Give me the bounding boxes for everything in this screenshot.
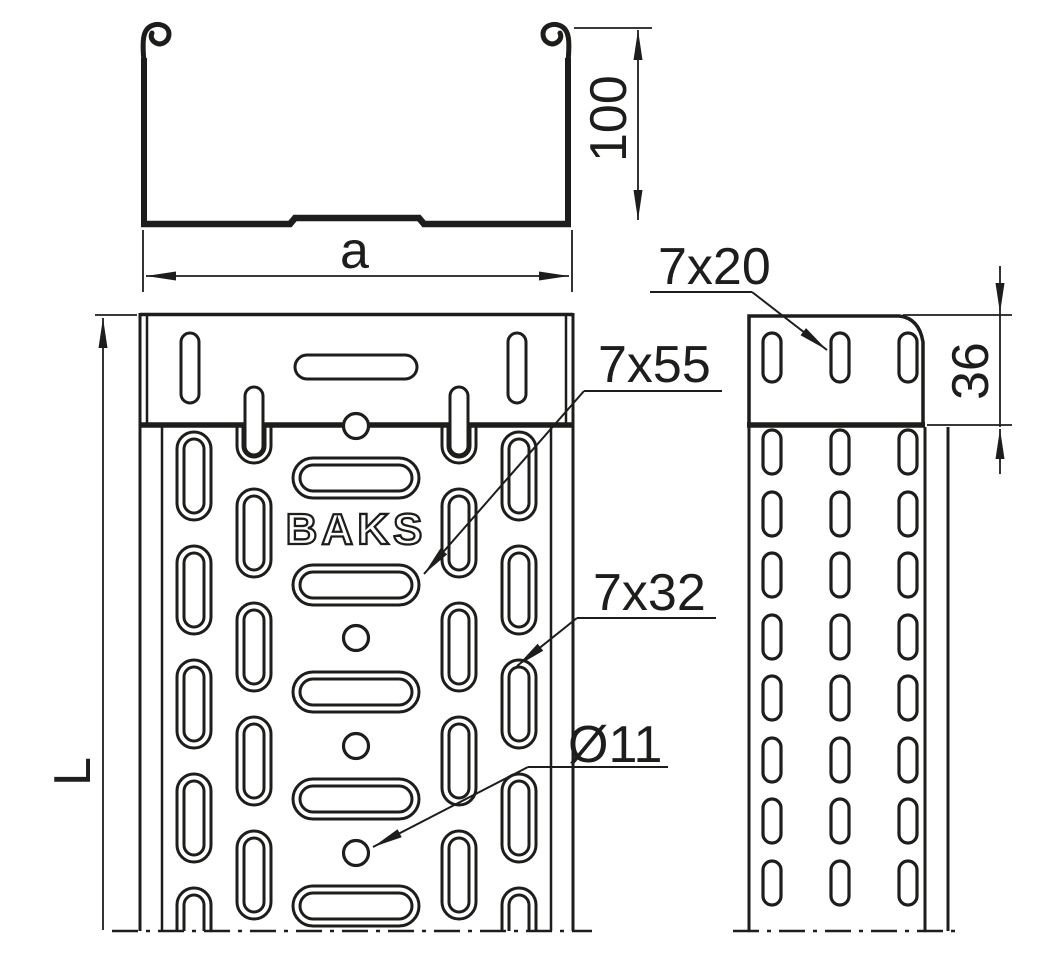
drawing-canvas: 100 a [0, 0, 1039, 977]
plan-view: BAKS [140, 313, 573, 976]
bottom-hole [344, 734, 369, 759]
plate-hslot [295, 355, 417, 379]
label-dia11: Ø11 [568, 716, 662, 774]
label-7x32: 7x32 [593, 564, 706, 622]
profile-view: 100 a [141, 24, 652, 292]
profile-left-hook [143, 24, 169, 62]
seam-slot [450, 387, 468, 455]
label-7x20: 7x20 [658, 238, 771, 296]
dim-100: 100 [574, 28, 652, 220]
dim-L: L [44, 315, 137, 930]
bottom-hole [344, 841, 369, 866]
seam-slot [245, 387, 263, 455]
callout-7x32: 7x32 [517, 564, 716, 666]
leader-7x55 [424, 391, 584, 574]
bottom-hole [344, 626, 369, 651]
dim-a: a [143, 222, 572, 292]
dim-a-label: a [340, 222, 369, 280]
plate-slot [508, 333, 526, 403]
seam-hole [344, 414, 369, 439]
dim-L-label: L [44, 757, 102, 786]
dim-100-label: 100 [580, 75, 638, 162]
dim-36-label: 36 [942, 342, 1000, 400]
label-7x55: 7x55 [598, 336, 711, 394]
profile-right-hook [543, 24, 569, 62]
side-view: 36 [733, 266, 1012, 931]
plate-slot [181, 333, 199, 403]
cable-tray-technical-drawing: 100 a [0, 0, 1039, 977]
baks-logo-text: BAKS [286, 505, 427, 554]
